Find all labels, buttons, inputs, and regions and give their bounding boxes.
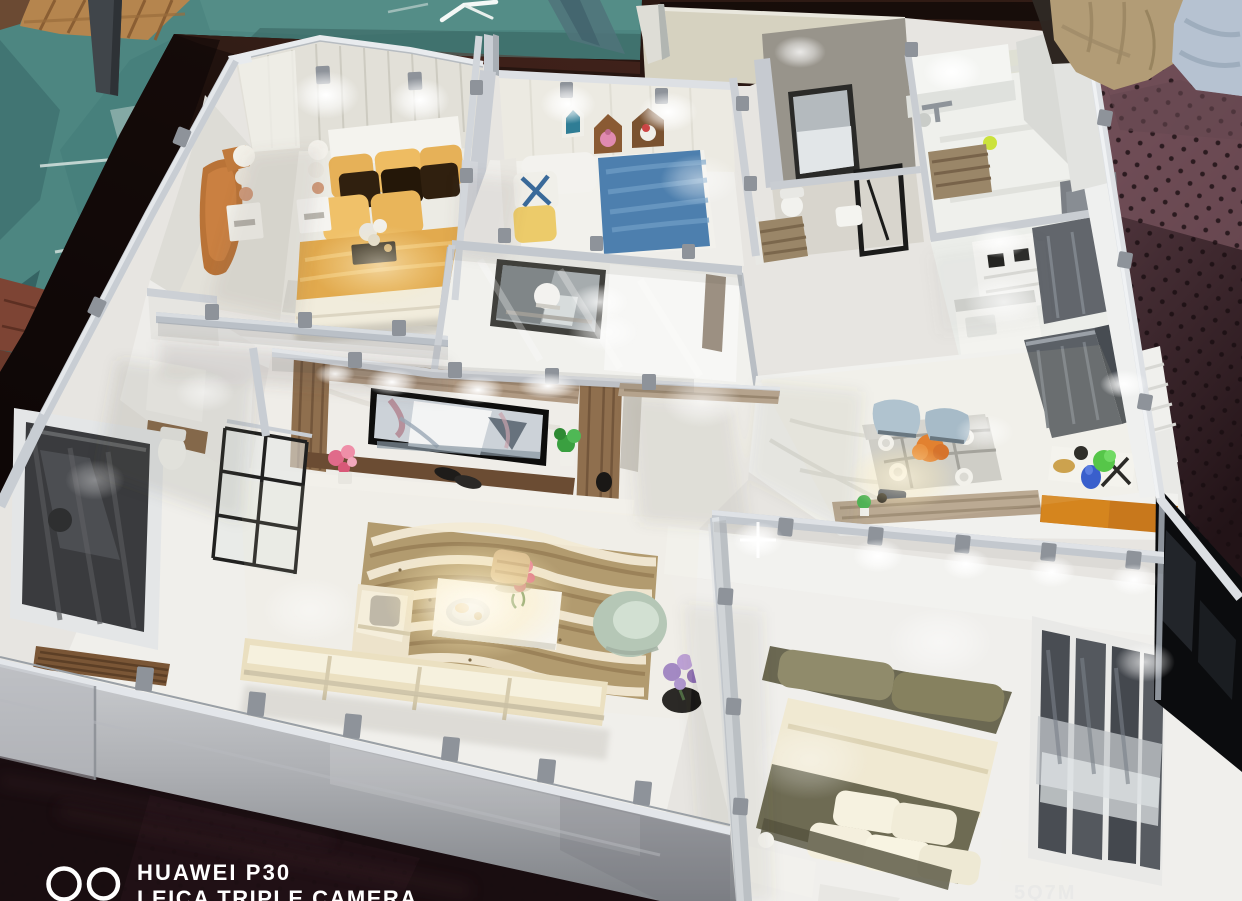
- svg-text:5Q7M: 5Q7M: [1014, 882, 1076, 901]
- svg-text:LEICA TRIPLE CAMERA: LEICA TRIPLE CAMERA: [137, 886, 418, 901]
- svg-text:HUAWEI P30: HUAWEI P30: [137, 860, 291, 885]
